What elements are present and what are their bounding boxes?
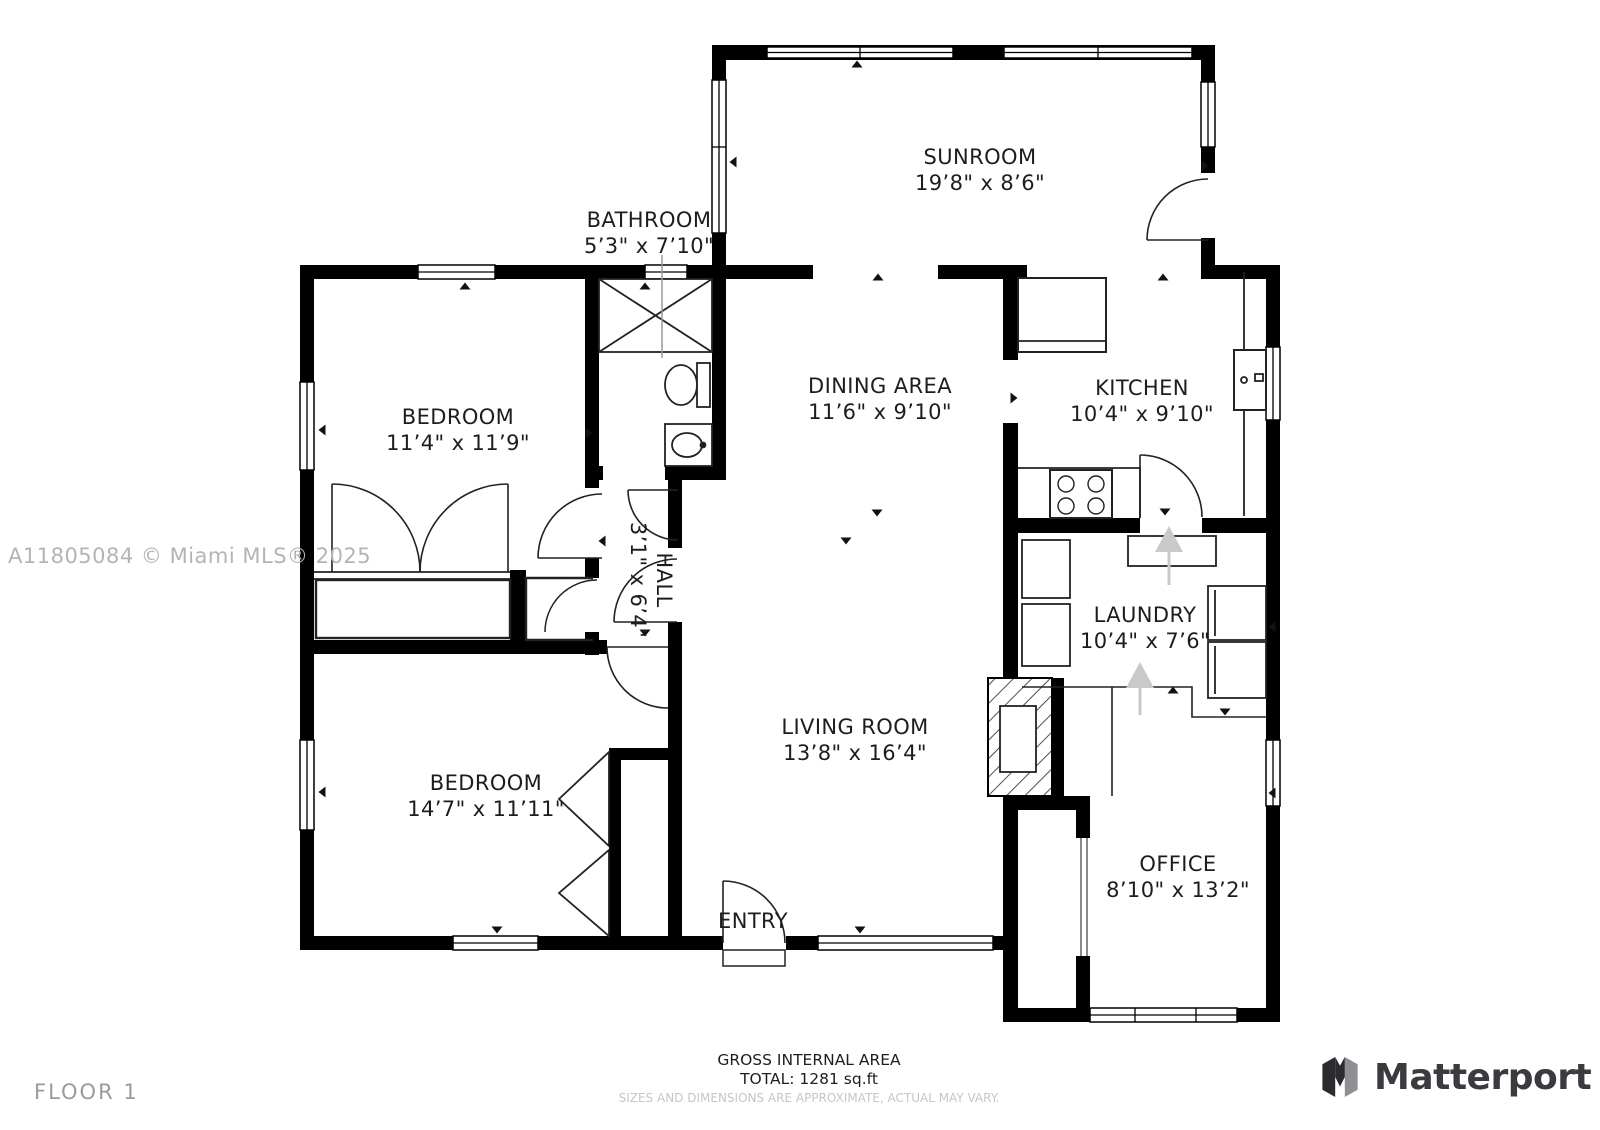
- shower: [599, 279, 712, 352]
- sunroom-door: [1147, 179, 1208, 240]
- footer: GROSS INTERNAL AREA TOTAL: 1281 sq.ft SI…: [619, 1051, 1000, 1106]
- pantry-sliding-door: [1081, 838, 1087, 956]
- window-mullions: [307, 47, 1273, 1022]
- fireplace: [988, 678, 1052, 796]
- laundry-cabinets: [1022, 536, 1216, 666]
- stove: [1050, 470, 1112, 518]
- hall-living-door: [614, 559, 677, 622]
- hall-closet: [526, 578, 597, 640]
- entry-threshold: [723, 950, 785, 966]
- matterport-logo-text: Matterport: [1374, 1057, 1591, 1098]
- bedroom2-door: [607, 647, 668, 708]
- toilet-icon: [665, 363, 710, 407]
- floor-plan-page: SUNROOM 19’8" x 8’6" BATHROOM 5’3" x 7’1…: [0, 0, 1600, 1130]
- matterport-logo-icon: [1316, 1053, 1364, 1101]
- fixtures-layer: [314, 255, 1266, 966]
- bedroom1-closet: [314, 572, 510, 638]
- closet-bifold-doors: [559, 752, 609, 936]
- kitchen-laundry-door: [1140, 455, 1202, 517]
- total-area-value: TOTAL: 1281 sq.ft: [619, 1070, 1000, 1089]
- floor-label: FLOOR 1: [34, 1080, 139, 1104]
- windows-layer: [300, 47, 1280, 1022]
- gross-internal-area-title: GROSS INTERNAL AREA: [619, 1051, 1000, 1070]
- kitchen-sink: [1234, 350, 1266, 410]
- bathroom-sink: [665, 424, 712, 466]
- bedroom1-door: [538, 494, 602, 558]
- mls-watermark: A11805084 © Miami MLS® 2025: [8, 544, 371, 568]
- entry-label: ENTRY: [718, 909, 788, 933]
- washer-dryer: [1208, 586, 1266, 698]
- matterport-logo: Matterport: [1316, 1053, 1591, 1101]
- disclaimer-text: SIZES AND DIMENSIONS ARE APPROXIMATE, AC…: [619, 1090, 1000, 1106]
- walls-layer: [300, 45, 1280, 1022]
